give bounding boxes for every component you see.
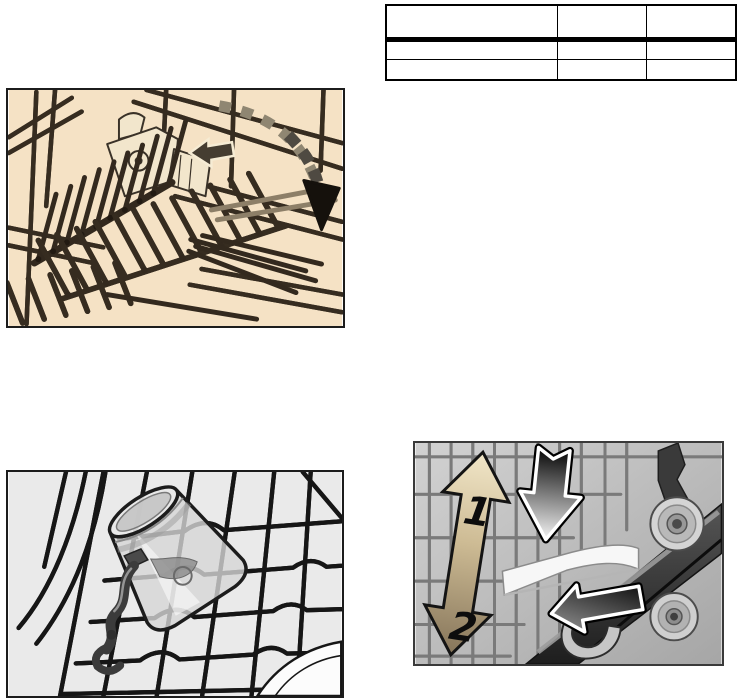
lower-roller	[650, 593, 697, 640]
spec-table-header-cell	[386, 5, 557, 40]
small-parts-holder-figure	[6, 470, 344, 698]
spec-table-header-row	[386, 5, 736, 40]
rack-height-illustration: 1 2	[415, 443, 722, 664]
rack-height-figure: 1 2	[413, 441, 724, 666]
folding-spikes-figure	[6, 88, 345, 328]
spec-table-cell	[646, 40, 736, 60]
folding-spikes-illustration	[8, 90, 343, 326]
spec-table-cell	[557, 60, 646, 81]
spec-table-row	[386, 60, 736, 81]
spec-table-header-cell	[557, 5, 646, 40]
spec-table	[385, 4, 737, 81]
spec-table-header-cell	[646, 5, 736, 40]
spec-table-cell	[557, 40, 646, 60]
manual-page: 1 2	[0, 0, 738, 700]
spec-table-row	[386, 40, 736, 60]
spec-table-cell	[646, 60, 736, 81]
spec-table-cell	[386, 60, 557, 81]
spec-table-cell	[386, 40, 557, 60]
upper-roller	[650, 497, 703, 550]
small-parts-holder-illustration	[8, 472, 342, 696]
